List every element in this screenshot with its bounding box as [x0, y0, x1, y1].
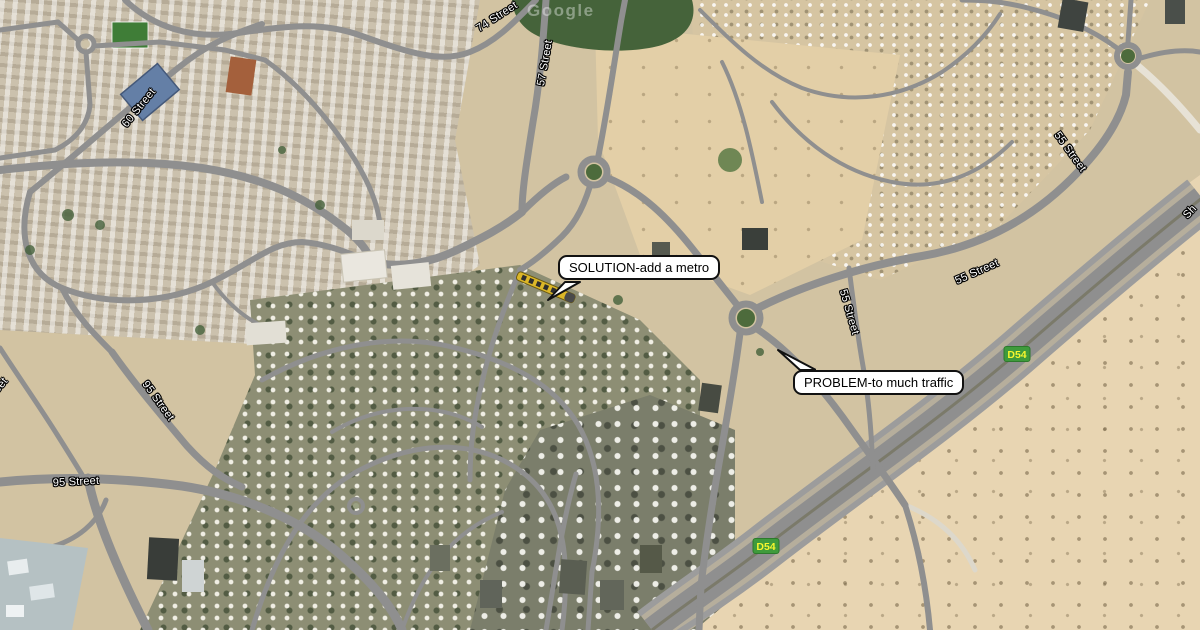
roads-layer: [0, 0, 1200, 630]
map-features-layer: [0, 0, 1200, 630]
problem-callout[interactable]: PROBLEM-to much traffic: [793, 370, 964, 395]
route-shield-d54: D54: [1004, 346, 1031, 362]
solution-callout[interactable]: SOLUTION-add a metro: [558, 255, 720, 280]
satellite-map-canvas[interactable]: Google 74 Street57 Street60 Street55 Str…: [0, 0, 1200, 630]
parks-layer: [112, 0, 742, 172]
imagery-watermark: Google: [527, 1, 595, 21]
solution-callout-tail: [540, 276, 584, 304]
route-shield-d54: D54: [753, 538, 780, 554]
street-label: 95 Street: [52, 475, 99, 489]
buildings-layer: [0, 0, 1185, 630]
